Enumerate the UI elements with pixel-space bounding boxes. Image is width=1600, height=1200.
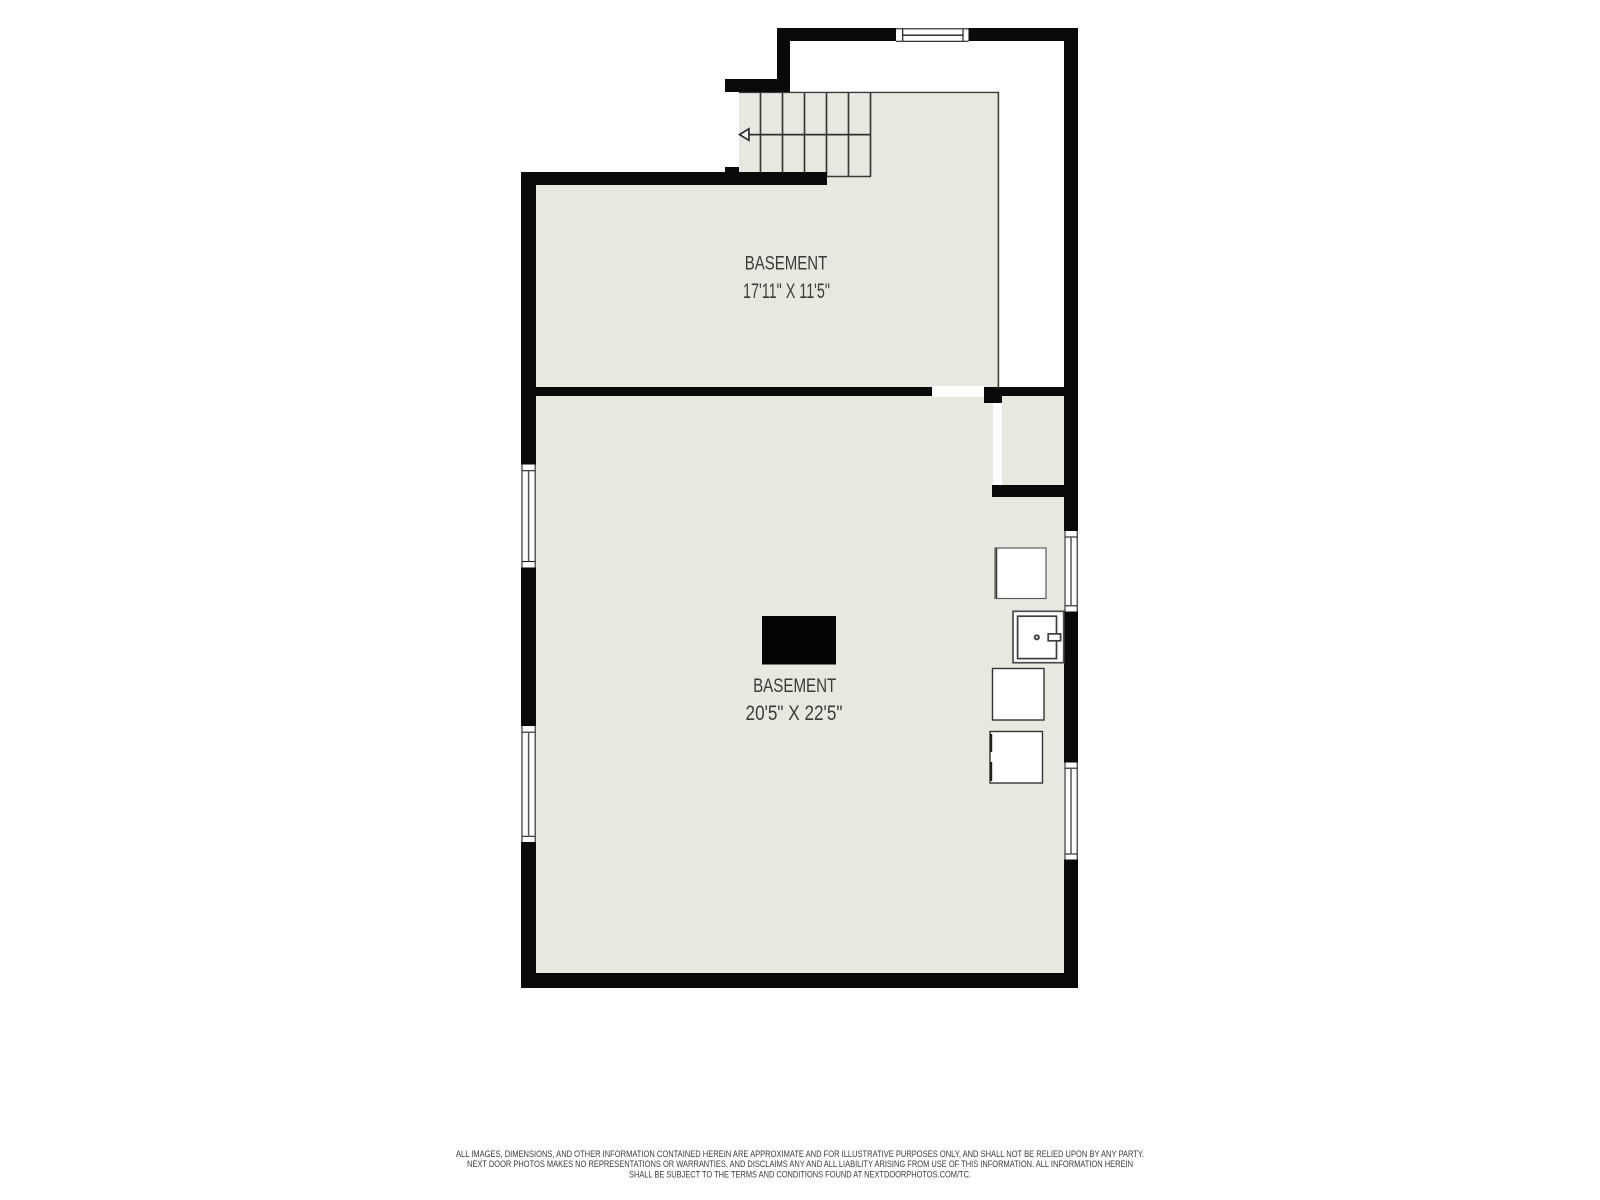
svg-text:17'11" X 11'5": 17'11" X 11'5": [743, 280, 830, 303]
svg-text:BASEMENT: BASEMENT: [753, 675, 836, 697]
svg-text:SHALL BE SUBJECT TO THE TERMS: SHALL BE SUBJECT TO THE TERMS AND CONDIT…: [629, 1169, 971, 1180]
svg-text:BASEMENT: BASEMENT: [745, 252, 828, 274]
svg-text:20'5" X 22'5": 20'5" X 22'5": [746, 702, 843, 725]
